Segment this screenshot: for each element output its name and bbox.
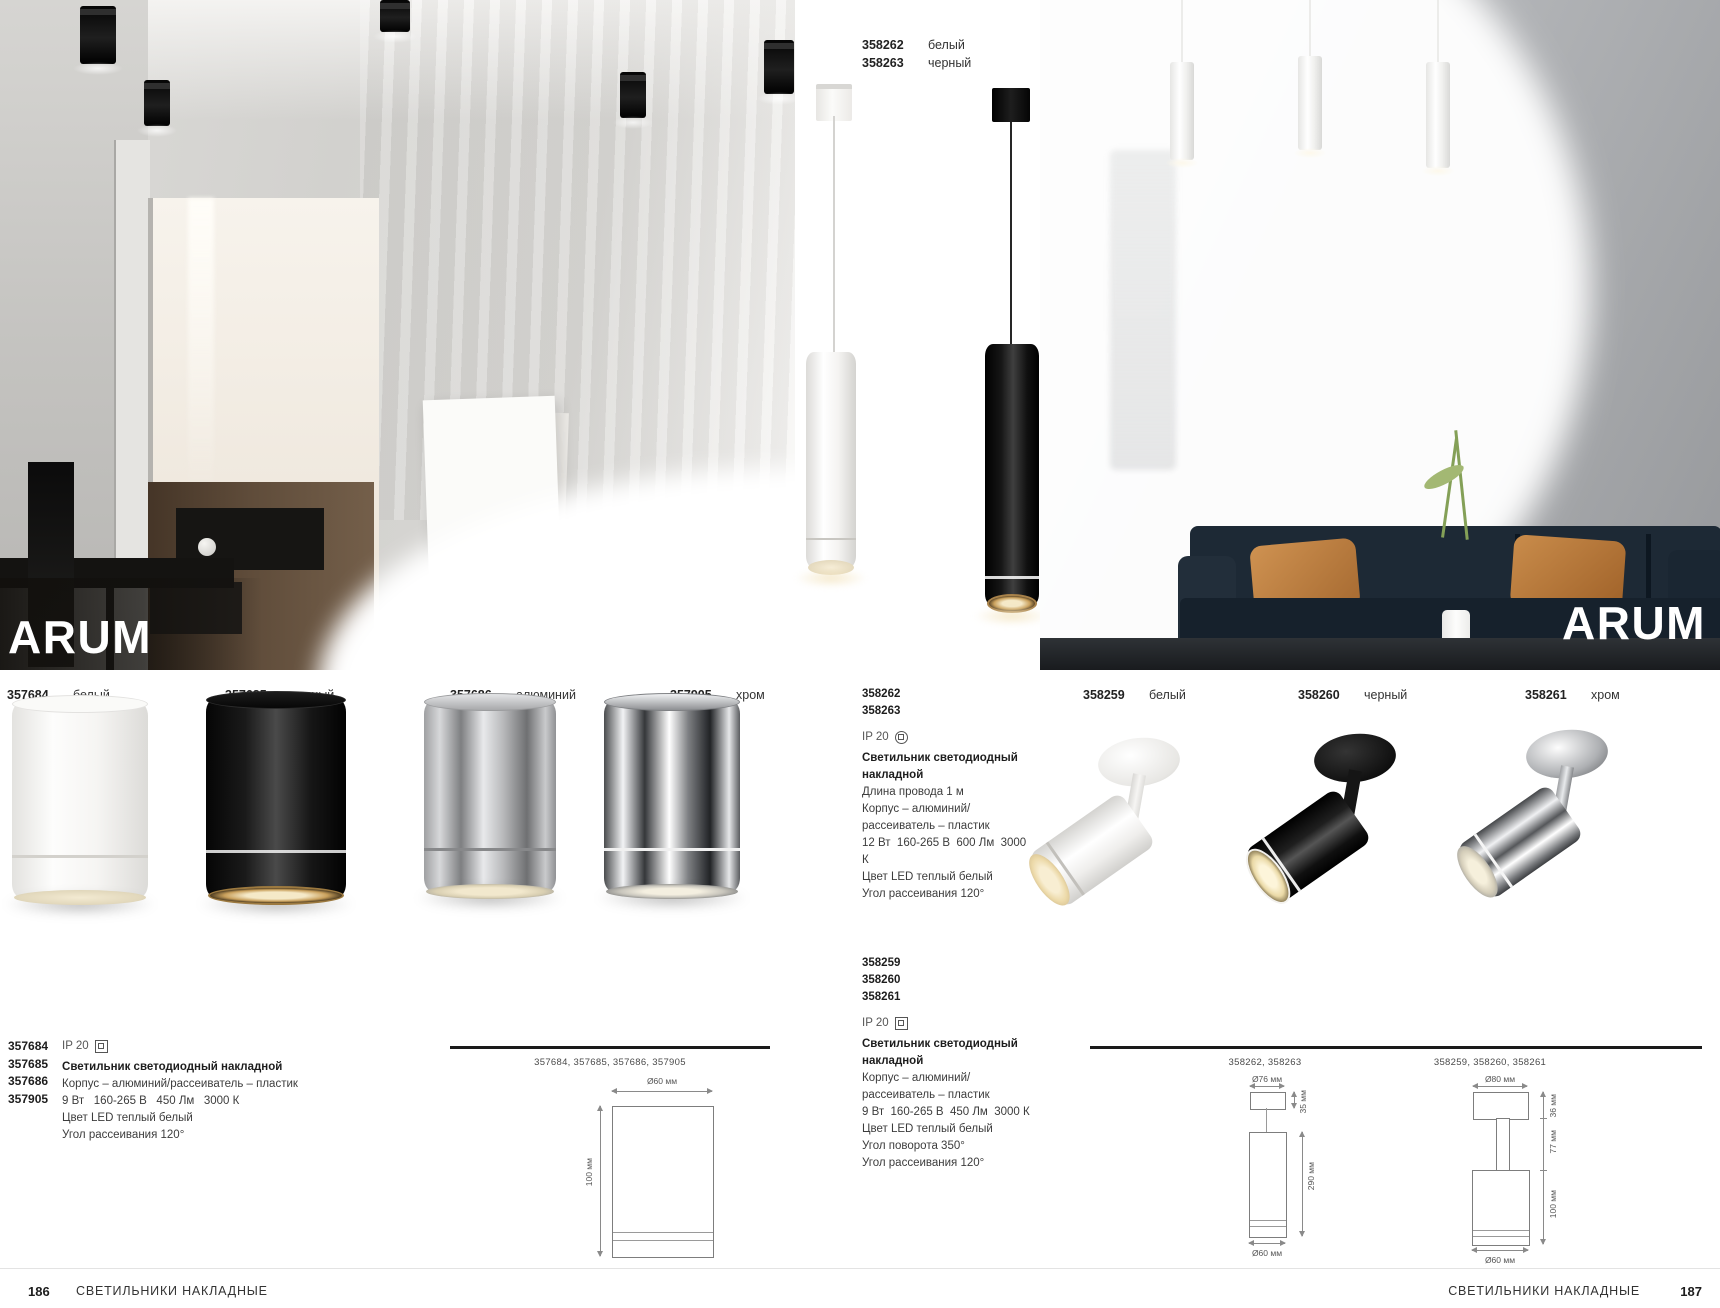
drawing-detail-line [1473, 1230, 1529, 1231]
dimension-label: 100 мм [1548, 1190, 1558, 1218]
spec-line: Угол рассеивания 120° [862, 886, 1034, 903]
dimension-label: Ø80 мм [1465, 1074, 1535, 1084]
spec-line: Угол поворота 350° [862, 1138, 1034, 1155]
product-label: 358260 черный [1298, 688, 1407, 703]
product-finish: хром [1591, 688, 1620, 703]
product-code: 358260 [1298, 688, 1350, 703]
dimension-line [1249, 1243, 1285, 1244]
pendant-cord [1437, 0, 1439, 64]
ip-rating: IP 20 [862, 1015, 889, 1032]
dimension-tick [1540, 1118, 1547, 1119]
spot-spec-block: 358259 358260 358261 IP 20 Светильник св… [862, 955, 1034, 1172]
product-photo-chrome-spot [1448, 714, 1658, 954]
product-photo-aluminium-cylinder [424, 700, 556, 892]
product-label: 358262 белый [862, 36, 971, 54]
drawing-detail-line [1250, 1226, 1286, 1227]
series-title-left: ARUM [8, 614, 152, 660]
shade-lens [14, 890, 146, 905]
white-pendant-tube [1298, 56, 1322, 150]
product-label: 358261 хром [1525, 688, 1620, 703]
spec-code: 357684 [8, 1038, 48, 1056]
shade-groove [806, 538, 856, 540]
spec-line: рассеиватель – пластик [862, 818, 1034, 835]
window-reflection [1110, 150, 1176, 470]
spec-code: 358259 [862, 955, 1034, 972]
product-photo-black-spot [1236, 718, 1446, 958]
white-pendant-tube [1170, 62, 1194, 160]
drawing-stem-outline [1496, 1118, 1510, 1172]
shade-lens [1022, 848, 1078, 912]
spec-line: Цвет LED теплый белый [862, 869, 1034, 886]
spec-title: Светильник светодиодный накладной [62, 1059, 298, 1076]
spec-codes-column: 357684 357685 357686 357905 [8, 1038, 48, 1144]
product-label: 358263 черный [862, 54, 971, 72]
pendant-label-block: 358262 белый 358263 черный [862, 36, 971, 72]
drawing-detail-line [613, 1240, 713, 1241]
drawing-detail-line [613, 1232, 713, 1233]
spec-line: 9 Вт 160-265 В 450 Лм 3000 К [862, 1104, 1034, 1121]
product-code: 358263 [862, 54, 914, 72]
dimension-label: 100 мм [584, 1158, 594, 1186]
spec-code: 358262 [862, 686, 1034, 703]
spec-title: Светильник светодиодный накладной [862, 750, 1034, 784]
drawing-caption: 358259, 358260, 358261 [1365, 1057, 1615, 1068]
pendant-spec-block: 358262 358263 IP 20 Светильник светодиод… [862, 686, 1034, 903]
footer-divider [0, 1268, 1720, 1269]
product-finish: черный [928, 54, 971, 72]
ip-rating: IP 20 [62, 1038, 89, 1055]
dimension-label: 35 мм [1298, 1090, 1308, 1114]
ceiling-spot-lamp [80, 6, 116, 64]
shade-lens [606, 884, 738, 899]
drawing-caption: 358262, 358263 [1145, 1057, 1385, 1068]
right-interior-photo: ARUM [1040, 0, 1720, 670]
drawing-canopy-outline [1250, 1092, 1286, 1110]
protection-class-icon [95, 1040, 108, 1053]
dimension-line [612, 1091, 712, 1092]
drawing-cylinder-outline [1249, 1132, 1287, 1238]
drawing-detail-line [1250, 1220, 1286, 1221]
black-pendant-shade [985, 344, 1039, 606]
spec-code: 358261 [862, 989, 1034, 1006]
white-pendant-cord [833, 116, 835, 354]
spec-title: Светильник светодиодный накладной [862, 1036, 1034, 1070]
dimension-label: 77 мм [1548, 1130, 1558, 1154]
ip-rating: IP 20 [862, 729, 889, 746]
page-number-left: 186 [28, 1284, 50, 1299]
product-photo-white-spot [1020, 722, 1230, 962]
light-glow [794, 568, 868, 588]
drawing-canopy-outline [1473, 1092, 1529, 1120]
dimension-line [1302, 1132, 1303, 1236]
ceiling-spot-lamp [380, 0, 410, 32]
shade-groove [12, 855, 148, 858]
dimension-label: Ø60 мм [612, 1076, 712, 1086]
shade-lens [426, 884, 554, 899]
spec-line: Цвет LED теплый белый [62, 1110, 298, 1127]
spec-line: 9 Вт 160-265 В 450 Лм 3000 К [62, 1093, 298, 1110]
spec-body: IP 20 Светильник светодиодный накладной … [62, 1038, 298, 1144]
drawing-section-rule [1090, 1046, 1702, 1049]
ceiling-spot-lamp [620, 72, 646, 118]
dimension-line [1543, 1092, 1544, 1244]
spec-line: Угол рассеивания 120° [862, 1155, 1034, 1172]
shade-groove [604, 848, 740, 851]
dimension-line [1250, 1086, 1284, 1087]
drawing-cylinder-outline [1472, 1170, 1530, 1246]
page-number-right: 187 [1680, 1284, 1702, 1299]
drawing-detail-line [1473, 1236, 1529, 1237]
product-finish: белый [1149, 688, 1186, 703]
shade-lens [1450, 840, 1506, 904]
dimension-label: 36 мм [1548, 1094, 1558, 1118]
dimension-label: 290 мм [1306, 1162, 1316, 1190]
product-photo-chrome-cylinder [604, 700, 740, 892]
spec-code: 358263 [862, 703, 1034, 720]
white-pendant-tube [1426, 62, 1450, 168]
product-label: 358259 белый [1083, 688, 1186, 703]
series-title-right: ARUM [1562, 600, 1706, 646]
shade-groove [206, 850, 346, 853]
spec-line: Угол рассеивания 120° [62, 1127, 298, 1144]
dimension-line [1473, 1086, 1527, 1087]
sofa-seam [1646, 534, 1651, 606]
dimension-line [600, 1106, 601, 1256]
product-finish: черный [1364, 688, 1407, 703]
spec-code: 357905 [8, 1091, 48, 1109]
catalog-spread: ARUM 358262 белый 358263 черный [0, 0, 1720, 1308]
spec-code: 358260 [862, 972, 1034, 989]
spec-line: Корпус – алюминий/рассеиватель – пластик [62, 1076, 298, 1093]
doorway-light [188, 198, 214, 498]
spec-code: 357686 [8, 1073, 48, 1091]
black-pendant-cord [1010, 122, 1012, 346]
decor-sphere [198, 538, 216, 556]
product-finish: хром [736, 688, 765, 703]
ip-rating-row: IP 20 [862, 1015, 1034, 1032]
product-photo-black-cylinder [206, 698, 346, 898]
spec-line: Корпус – алюминий/ [862, 1070, 1034, 1087]
dimension-line [1294, 1092, 1295, 1108]
white-pendant-shade [806, 352, 856, 568]
spec-code: 357685 [8, 1056, 48, 1074]
dimension-label: Ø60 мм [1232, 1248, 1302, 1258]
drawing-cylinder-outline [612, 1106, 714, 1258]
product-code: 358261 [1525, 688, 1577, 703]
dimension-tick [1540, 1170, 1547, 1171]
protection-class-icon [895, 731, 908, 744]
spec-line: рассеиватель – пластик [862, 1087, 1034, 1104]
protection-class-icon [895, 1017, 908, 1030]
dimension-label: Ø76 мм [1232, 1074, 1302, 1084]
product-code: 358259 [1083, 688, 1135, 703]
spec-line: Корпус – алюминий/ [862, 801, 1034, 818]
spec-line: 12 Вт 160-265 В 600 Лм 3000 К [862, 835, 1034, 869]
shade-groove [985, 576, 1039, 579]
left-interior-photo: ARUM [0, 0, 795, 670]
spec-line: Цвет LED теплый белый [862, 1121, 1034, 1138]
ceiling-spot-lamp [144, 80, 170, 126]
drawing-cord-line [1266, 1108, 1267, 1132]
shade-lens [208, 886, 344, 905]
ceiling-spot-lamp [764, 40, 794, 94]
footer-section-right: СВЕТИЛЬНИКИ НАКЛАДНЫЕ [1448, 1284, 1640, 1298]
left-spec-block: 357684 357685 357686 357905 IP 20 Светил… [8, 1038, 338, 1144]
product-code: 358262 [862, 36, 914, 54]
dimension-label: Ø60 мм [1465, 1255, 1535, 1265]
product-photo-white-cylinder [12, 702, 148, 898]
product-finish: белый [928, 36, 965, 54]
ip-rating-row: IP 20 [862, 729, 1034, 746]
shade-groove [424, 848, 556, 851]
mirror-strip [114, 140, 150, 570]
drawing-caption: 357684, 357685, 357686, 357905 [450, 1057, 770, 1068]
dimension-line [1472, 1250, 1528, 1251]
black-pendant-canopy [992, 88, 1030, 122]
drawing-section-rule [450, 1046, 770, 1049]
pendant-cord [1181, 0, 1183, 62]
pendant-cord [1309, 0, 1311, 56]
footer-section-left: СВЕТИЛЬНИКИ НАКЛАДНЫЕ [76, 1284, 268, 1298]
ip-rating-row: IP 20 [62, 1038, 298, 1055]
spec-line: Длина провода 1 м [862, 784, 1034, 801]
